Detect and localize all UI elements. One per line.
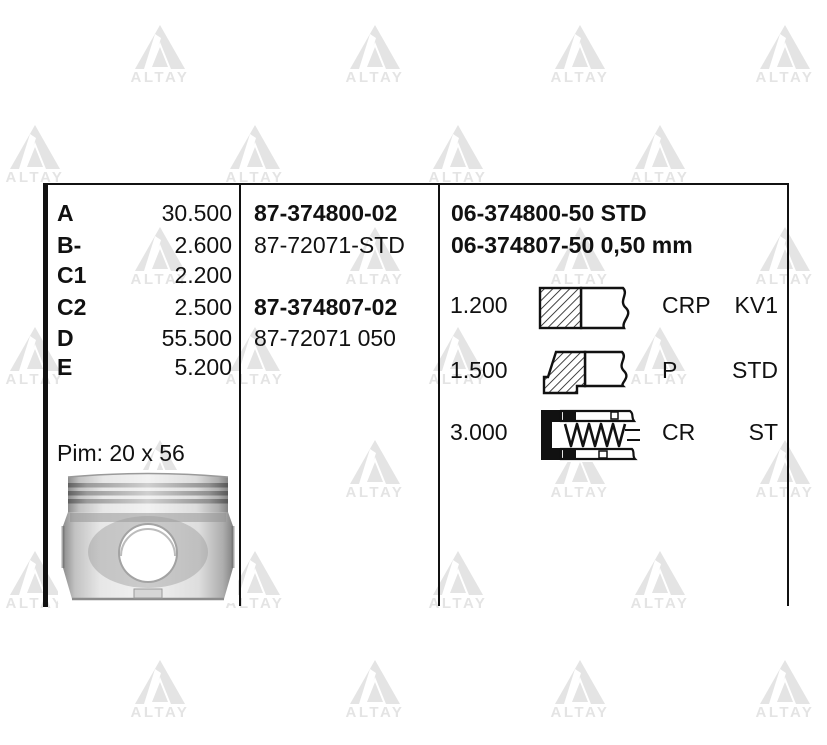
altay-watermark: ALTAY	[340, 25, 410, 85]
altay-triangle-logo-icon	[760, 660, 810, 704]
watermark-text: ALTAY	[545, 70, 615, 85]
altay-triangle-logo-icon	[350, 440, 400, 484]
table-left-border	[43, 183, 48, 607]
dimension-row: D 55.500	[57, 324, 232, 352]
dimension-row: C1 2.200	[57, 261, 232, 289]
altay-triangle-logo-icon	[635, 125, 685, 169]
ring-spec: ST	[700, 418, 778, 446]
piston-part-number: 87-374807-02	[254, 293, 397, 321]
watermark-text: ALTAY	[340, 485, 410, 500]
altay-watermark: ALTAY	[340, 660, 410, 720]
ring-size: 3.000	[450, 418, 508, 446]
dimension-value: 5.200	[174, 353, 232, 381]
taper-ring-profile-icon	[540, 350, 640, 395]
altay-triangle-logo-icon	[10, 551, 60, 595]
dimension-row: B- 2.600	[57, 231, 232, 259]
altay-watermark: ALTAY	[750, 660, 820, 720]
table-right-border	[787, 183, 789, 606]
altay-watermark: ALTAY	[340, 440, 410, 500]
altay-triangle-logo-icon	[135, 25, 185, 69]
altay-watermark: ALTAY	[423, 551, 493, 611]
watermark-text: ALTAY	[340, 705, 410, 720]
altay-watermark: ALTAY	[545, 660, 615, 720]
altay-triangle-logo-icon	[433, 551, 483, 595]
altay-watermark: ALTAY	[125, 660, 195, 720]
watermark-text: ALTAY	[750, 272, 820, 287]
dimension-row: E 5.200	[57, 353, 232, 381]
watermark-text: ALTAY	[625, 596, 695, 611]
watermark-text: ALTAY	[545, 485, 615, 500]
dimension-label: C1	[57, 261, 86, 289]
compression-ring-profile-icon	[538, 286, 640, 330]
watermark-text: ALTAY	[545, 272, 615, 287]
piston-photo	[58, 470, 238, 603]
altay-watermark: ALTAY	[125, 25, 195, 85]
altay-triangle-logo-icon	[10, 125, 60, 169]
pin-size-label: Pim: 20 x 56	[57, 439, 185, 467]
altay-triangle-logo-icon	[10, 327, 60, 371]
altay-watermark: ALTAY	[750, 25, 820, 85]
ring-type: P	[662, 356, 677, 384]
watermark-text: ALTAY	[750, 705, 820, 720]
altay-triangle-logo-icon	[760, 25, 810, 69]
dimension-row: A 30.500	[57, 199, 232, 227]
altay-triangle-logo-icon	[635, 551, 685, 595]
altay-watermark: ALTAY	[625, 551, 695, 611]
altay-watermark: ALTAY	[545, 25, 615, 85]
piston-part-number: 87-72071 050	[254, 324, 396, 352]
altay-watermark: ALTAY	[0, 125, 70, 185]
dimension-value: 2.600	[174, 231, 232, 259]
dimension-value: 2.200	[174, 261, 232, 289]
altay-triangle-logo-icon	[433, 125, 483, 169]
altay-watermark: ALTAY	[750, 227, 820, 287]
dimension-value: 55.500	[162, 324, 232, 352]
dimension-value: 2.500	[174, 293, 232, 321]
piston-part-number: 87-374800-02	[254, 199, 397, 227]
watermark-text: ALTAY	[340, 272, 410, 287]
ring-set-number: 06-374800-50 STD	[451, 199, 647, 227]
watermark-text: ALTAY	[750, 485, 820, 500]
altay-triangle-logo-icon	[555, 25, 605, 69]
watermark-text: ALTAY	[125, 705, 195, 720]
dimension-label: A	[57, 199, 74, 227]
dimension-label: B-	[57, 231, 81, 259]
altay-triangle-logo-icon	[350, 660, 400, 704]
ring-size: 1.200	[450, 291, 508, 319]
ring-spec: STD	[700, 356, 778, 384]
dimension-label: C2	[57, 293, 86, 321]
altay-watermark: ALTAY	[750, 440, 820, 500]
ring-spec: KV1	[700, 291, 778, 319]
altay-triangle-logo-icon	[350, 25, 400, 69]
altay-triangle-logo-icon	[135, 660, 185, 704]
watermark-text: ALTAY	[545, 705, 615, 720]
altay-triangle-logo-icon	[635, 327, 685, 371]
piston-part-number: 87-72071-STD	[254, 231, 405, 259]
watermark-text: ALTAY	[750, 70, 820, 85]
watermark-text: ALTAY	[340, 70, 410, 85]
altay-triangle-logo-icon	[760, 227, 810, 271]
dimension-value: 30.500	[162, 199, 232, 227]
oil-ring-profile-icon	[537, 408, 643, 462]
altay-watermark: ALTAY	[423, 125, 493, 185]
column-separator-1	[239, 183, 241, 606]
ring-set-number: 06-374807-50 0,50 mm	[451, 231, 693, 259]
table-top-border	[43, 183, 789, 185]
column-separator-2	[438, 183, 440, 606]
watermark-text: ALTAY	[125, 70, 195, 85]
altay-watermark: ALTAY	[220, 125, 290, 185]
dimension-label: D	[57, 324, 74, 352]
ring-size: 1.500	[450, 356, 508, 384]
ring-type: CR	[662, 418, 695, 446]
dimension-row: C2 2.500	[57, 293, 232, 321]
altay-watermark: ALTAY	[625, 125, 695, 185]
altay-triangle-logo-icon	[230, 125, 280, 169]
altay-triangle-logo-icon	[555, 660, 605, 704]
dimension-label: E	[57, 353, 72, 381]
altay-triangle-logo-icon	[760, 440, 810, 484]
watermark-text: ALTAY	[423, 596, 493, 611]
catalog-page: ALTAY ALTAY ALTAY ALTAY	[0, 0, 827, 745]
